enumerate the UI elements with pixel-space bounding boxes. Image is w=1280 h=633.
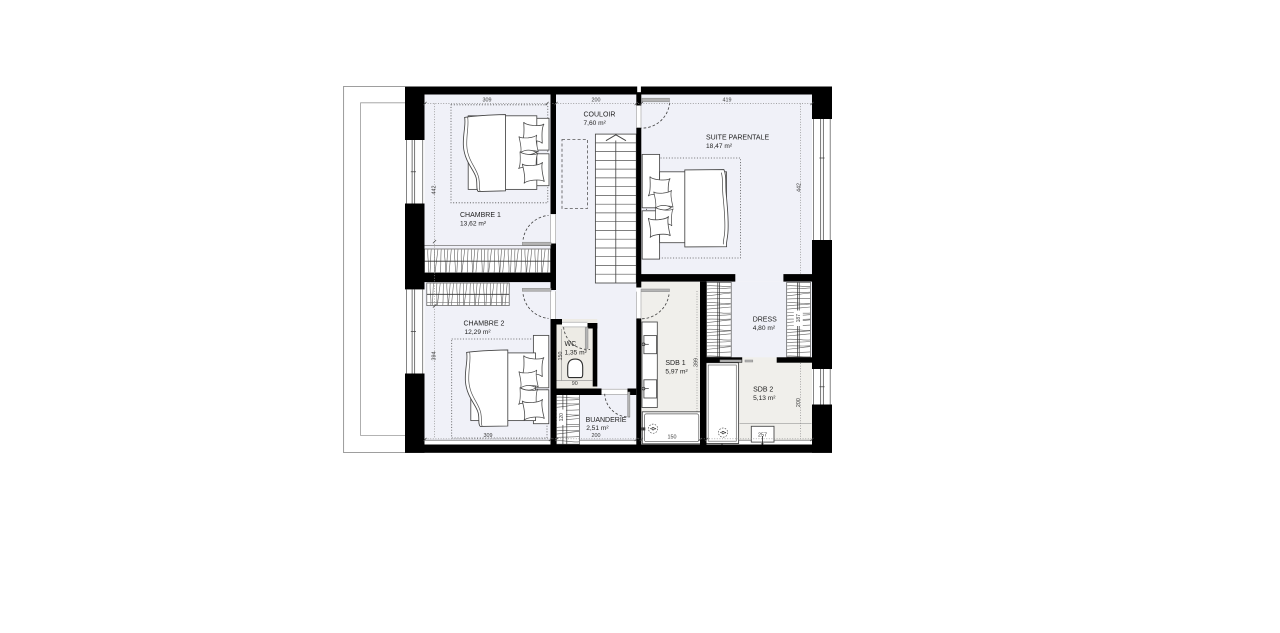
svg-text:309: 309 [483,98,492,104]
svg-text:1,35 m²: 1,35 m² [565,349,588,356]
svg-text:2,51 m²: 2,51 m² [586,425,609,432]
svg-text:4,80 m²: 4,80 m² [753,325,776,332]
svg-text:DRESS: DRESS [753,317,777,324]
svg-text:394: 394 [432,352,438,361]
svg-text:7,60 m²: 7,60 m² [584,120,607,127]
svg-text:309: 309 [484,433,493,439]
svg-text:399: 399 [693,358,699,367]
svg-text:CHAMBRE 2: CHAMBRE 2 [464,321,505,328]
svg-text:257: 257 [758,433,767,439]
svg-text:150: 150 [668,434,677,440]
svg-text:120: 120 [559,413,565,422]
svg-text:SDB 1: SDB 1 [665,360,685,367]
svg-text:200: 200 [796,398,802,407]
svg-text:COULOIR: COULOIR [584,112,616,119]
svg-text:419: 419 [723,98,732,104]
svg-text:200: 200 [592,433,601,439]
svg-text:CHAMBRE 1: CHAMBRE 1 [460,212,501,219]
svg-text:150: 150 [558,352,564,361]
svg-text:18,47 m²: 18,47 m² [706,143,733,150]
svg-text:187: 187 [796,314,802,323]
svg-text:5,13 m²: 5,13 m² [753,395,776,402]
svg-text:442: 442 [432,186,438,195]
svg-text:13,62 m²: 13,62 m² [460,220,487,227]
svg-text:SUITE PARENTALE: SUITE PARENTALE [706,135,769,142]
svg-text:BUANDERIE: BUANDERIE [586,417,627,424]
svg-text:WC: WC [565,341,577,348]
svg-text:12,29 m²: 12,29 m² [465,329,492,336]
svg-text:442: 442 [797,183,803,192]
svg-text:SDB 2: SDB 2 [753,387,773,394]
svg-text:200: 200 [592,98,601,104]
svg-text:5,97 m²: 5,97 m² [665,368,688,375]
svg-text:90: 90 [572,381,578,387]
